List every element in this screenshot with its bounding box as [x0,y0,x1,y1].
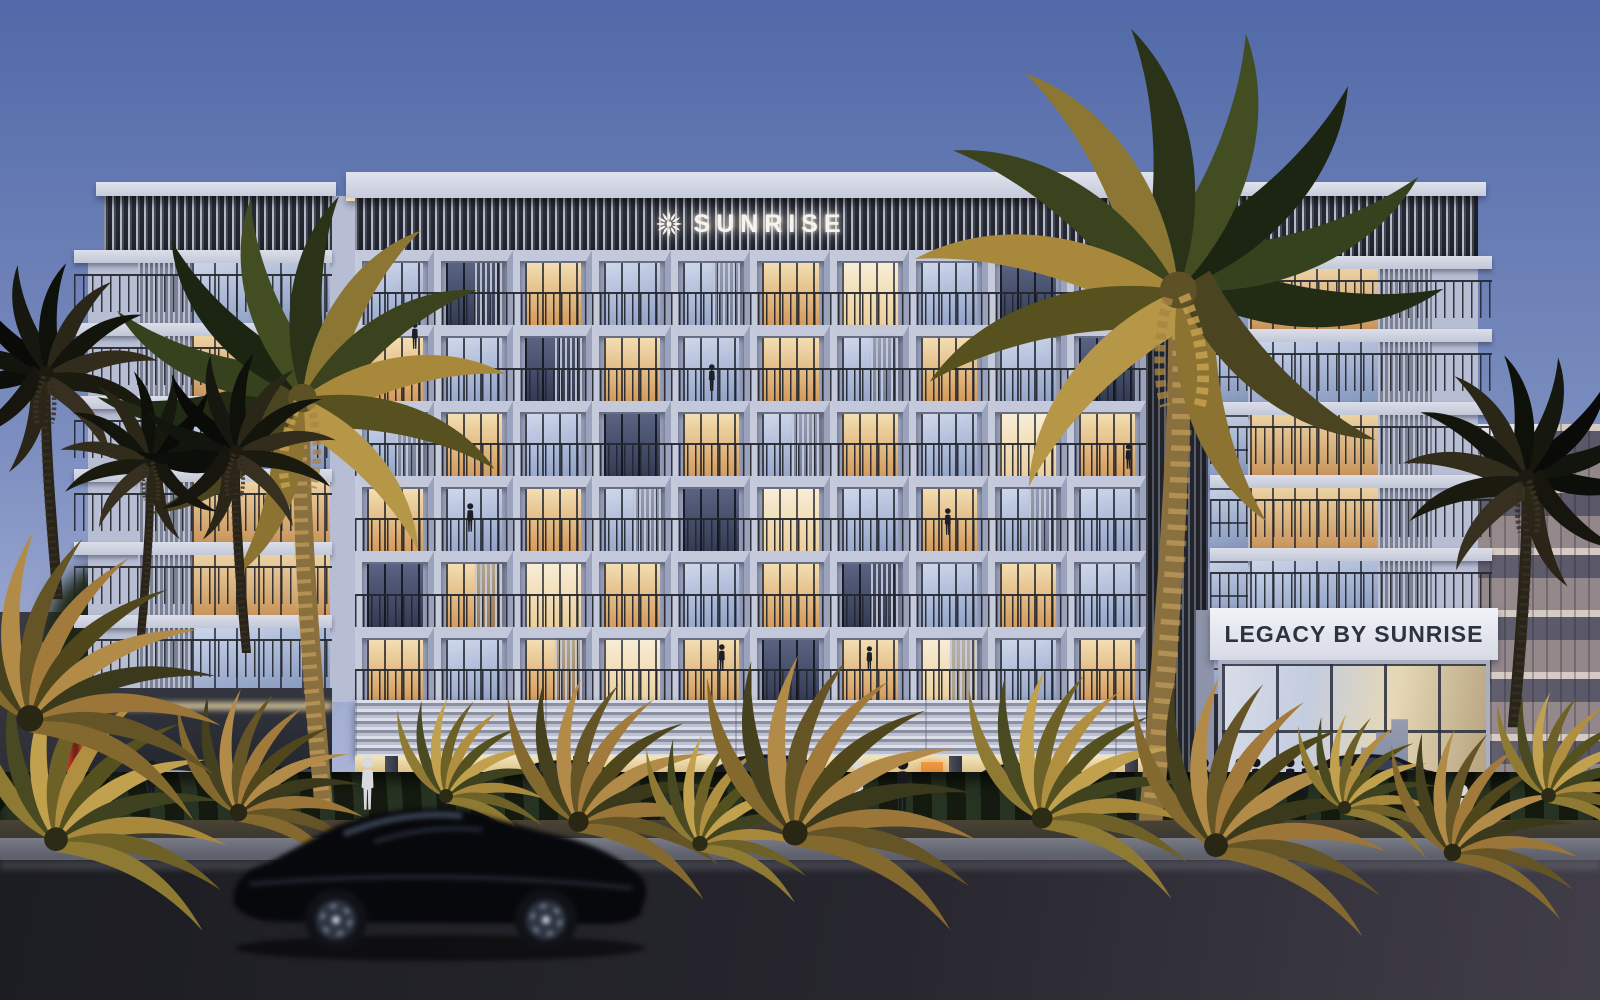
balcony-railing [592,518,671,551]
background-palm-tree [1390,385,1600,732]
golden-fern-palm [1433,705,1600,806]
sunrise-logo: SUNRISE [654,209,846,239]
balcony-cell [592,325,671,400]
balcony-railing [592,594,671,627]
balcony-railing [671,518,750,551]
balcony-railing [671,594,750,627]
balcony-person [864,646,875,672]
balcony-cell [750,551,829,626]
balcony-cell [671,250,750,325]
foreground-car [224,782,660,972]
balcony-railing [750,292,829,325]
car-wheel-rear [305,889,367,951]
balcony-railing [750,518,829,551]
balcony-cell [592,551,671,626]
balcony-railing [750,368,829,401]
car-wheel-front [515,889,577,951]
golden-fern-palm [0,555,239,737]
balcony-cell [750,476,829,551]
balcony-railing [592,368,671,401]
logo-text: SUNRISE [693,210,846,239]
balcony-cell [592,401,671,476]
balcony-railing [592,292,671,325]
balcony-railing [750,443,829,476]
balcony-person [716,644,728,672]
balcony-railing [671,292,750,325]
left-tower-parapet [96,182,336,196]
sun-burst-icon [654,209,684,239]
balcony-railing [592,443,671,476]
balcony-person [706,364,718,392]
balcony-railing [671,443,750,476]
balcony-cell [671,476,750,551]
balcony-cell [750,325,829,400]
balcony-cell [671,401,750,476]
balcony-cell [750,401,829,476]
balcony-cell [671,551,750,626]
balcony-cell [592,476,671,551]
balcony-cell [750,250,829,325]
balcony-railing [750,594,829,627]
balcony-cell [592,250,671,325]
scene-dusk-building-render: SUNRISE LEGACY BY SUNRISE [0,0,1600,1000]
